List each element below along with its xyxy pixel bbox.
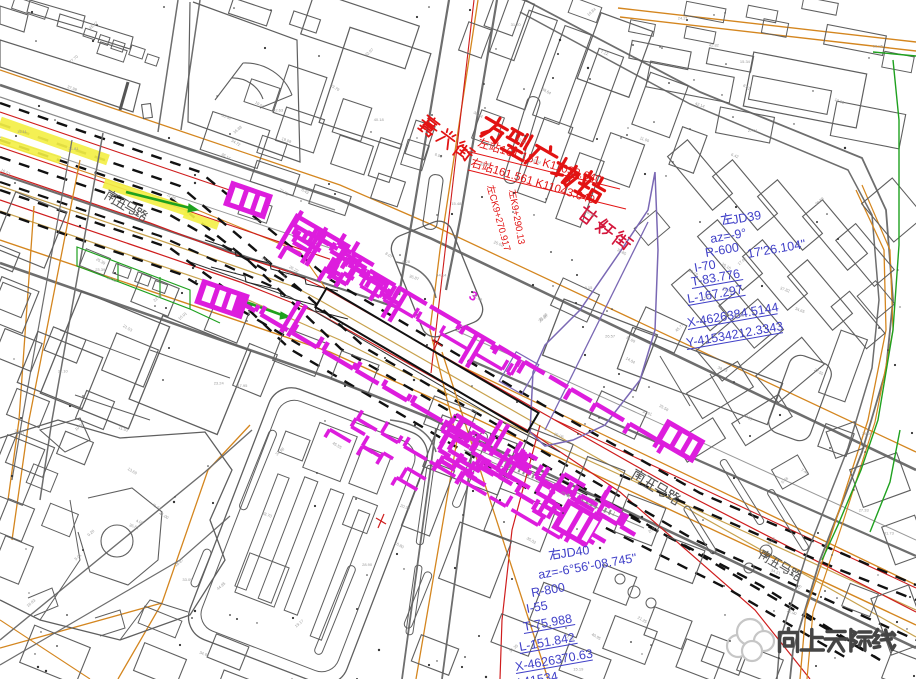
svg-text:23.24: 23.24	[214, 380, 225, 385]
svg-text:27.01: 27.01	[748, 128, 759, 133]
svg-text:26.00: 26.00	[862, 431, 873, 436]
svg-text:15.34: 15.34	[740, 59, 751, 64]
svg-text:28.90: 28.90	[362, 562, 373, 567]
svg-text:24.21: 24.21	[678, 16, 689, 21]
svg-text:15.19: 15.19	[573, 666, 584, 671]
svg-text:26.57: 26.57	[605, 333, 616, 338]
svg-text:16.95: 16.95	[873, 44, 884, 49]
svg-text:40.18: 40.18	[374, 117, 385, 122]
svg-text:12.11: 12.11	[17, 129, 27, 134]
svg-text:31.70: 31.70	[511, 22, 522, 27]
svg-text:17.95: 17.95	[237, 383, 248, 388]
svg-text:9.15: 9.15	[585, 285, 594, 290]
svg-text:8.28: 8.28	[402, 259, 411, 264]
svg-text:27.33: 27.33	[859, 508, 870, 513]
svg-text:44.14: 44.14	[436, 273, 447, 278]
svg-text:31.81: 31.81	[69, 146, 80, 151]
svg-text:42.63: 42.63	[273, 108, 284, 113]
svg-text:31.73: 31.73	[884, 531, 895, 536]
svg-text:37.10: 37.10	[58, 369, 69, 374]
svg-text:38.59: 38.59	[734, 313, 745, 318]
svg-text:43.88: 43.88	[480, 162, 491, 167]
svg-text:15.48: 15.48	[451, 201, 462, 206]
svg-text:23.39: 23.39	[95, 267, 106, 272]
svg-text:33.09: 33.09	[182, 577, 193, 582]
svg-text:42.82: 42.82	[709, 43, 720, 48]
